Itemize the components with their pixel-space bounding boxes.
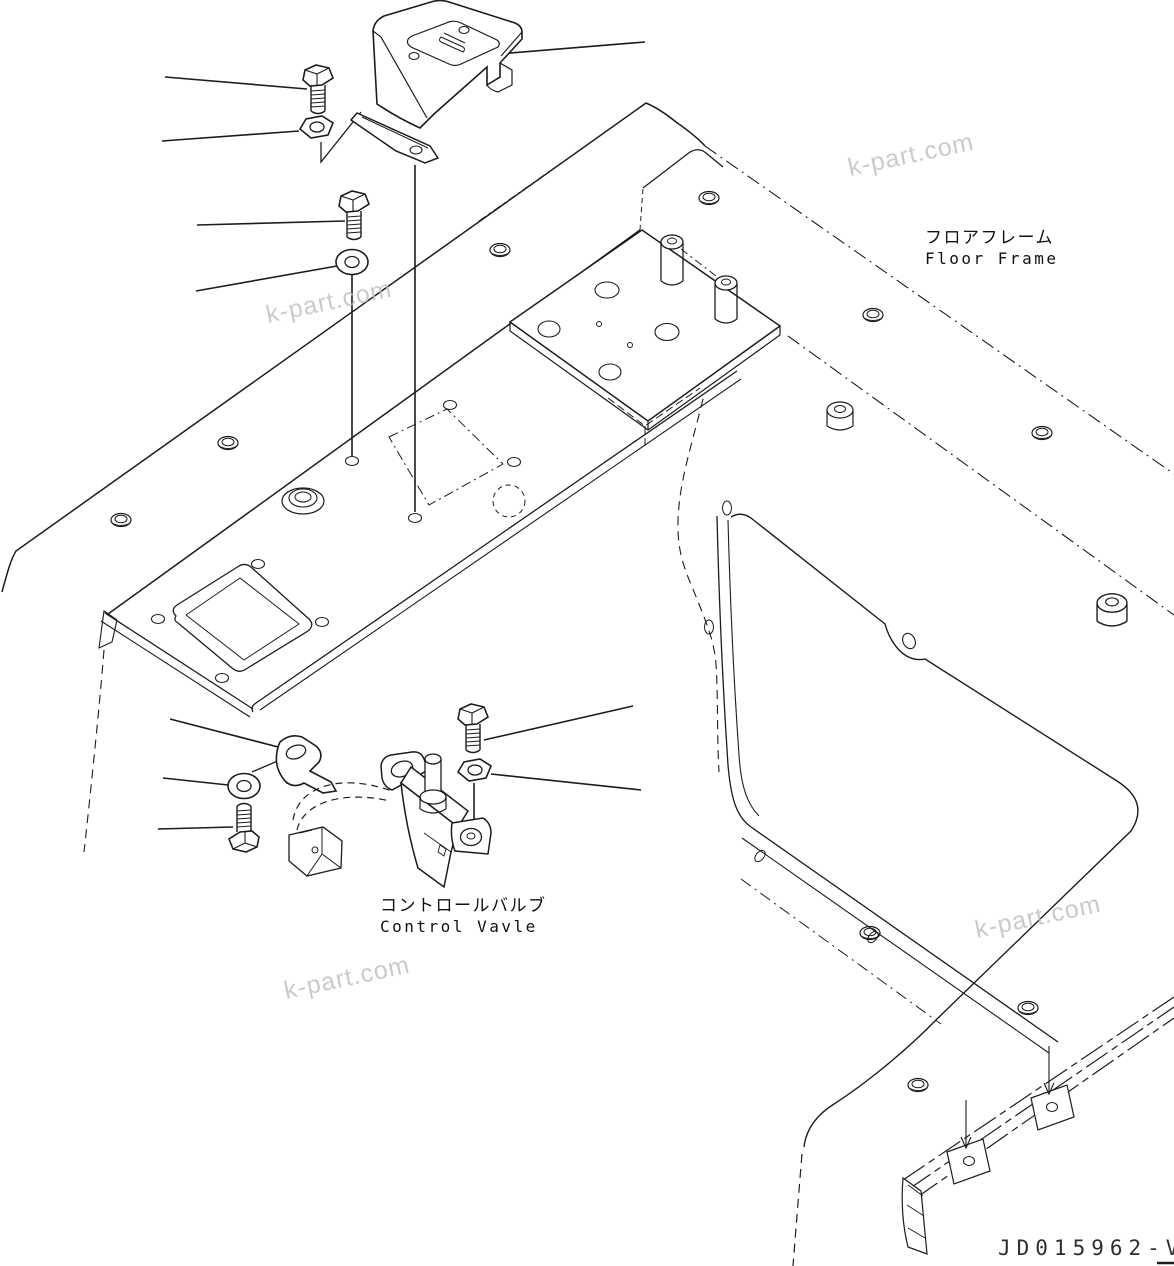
- flat-washer: [228, 774, 260, 799]
- floor-frame: [2, 103, 1174, 1266]
- large-grommet: [282, 488, 324, 514]
- bolt-hole: [152, 615, 165, 624]
- grommet-hole: [699, 192, 719, 205]
- boss-cylinder: [827, 402, 853, 430]
- leader-bolt-top: [165, 77, 307, 89]
- grommet-hole: [1018, 1002, 1038, 1015]
- flange-washer: [458, 759, 491, 781]
- clamp-tab: [276, 736, 336, 793]
- grommet-hole: [490, 244, 510, 257]
- leader-valve-washer: [491, 774, 641, 790]
- watermark: k-part.com: [263, 275, 394, 329]
- grommet-hole: [1032, 427, 1052, 440]
- watermark: k-part.com: [281, 951, 412, 1005]
- hex-bolt: [229, 804, 259, 853]
- hidden-hole: [493, 485, 525, 517]
- parts-diagram-canvas: フロアフレーム Floor Frame コントロールバルブ Control Va…: [0, 0, 1174, 1266]
- side-wall: [678, 399, 1174, 1266]
- rail-tab: [1031, 1046, 1074, 1130]
- grommet-hole: [218, 437, 238, 450]
- control-valve-label-jp: コントロールバルブ: [380, 895, 547, 916]
- watermark: k-part.com: [845, 128, 976, 182]
- hex-bolt: [458, 704, 488, 753]
- fasteners: [228, 65, 491, 852]
- hidden-recess-outline: [389, 409, 503, 505]
- grommet-hole: [863, 309, 883, 322]
- mounting-bracket: [351, 1, 522, 164]
- bracket-mount-hole: [409, 514, 422, 523]
- deck-front-edge: [105, 371, 737, 712]
- floor-frame-label-jp: フロアフレーム: [925, 228, 1054, 248]
- leader-washer-left: [163, 778, 228, 785]
- leader-valve-bolt: [484, 706, 633, 740]
- exploded-parts-diagram: フロアフレーム Floor Frame コントロールバルブ Control Va…: [0, 0, 1174, 1266]
- boss-cylinder: [1097, 594, 1127, 626]
- bracket-mount-hole: [346, 457, 359, 466]
- hex-bolt: [339, 191, 369, 240]
- leader-washer-second: [196, 266, 337, 291]
- leader-bracket: [498, 42, 645, 54]
- flat-washer: [336, 250, 368, 275]
- drawing-number: JD015962-V: [998, 1236, 1174, 1260]
- connector: [289, 827, 342, 876]
- bolt-hole: [444, 401, 457, 410]
- leader-bolt-left: [158, 827, 233, 829]
- floor-frame-label-en: Floor Frame: [925, 249, 1058, 268]
- wire-harness: [293, 783, 392, 830]
- control-valve-label-en: Control Vavle: [380, 917, 538, 936]
- wall-opening-outline: [731, 514, 1138, 1147]
- hex-bolt: [303, 65, 333, 114]
- leader-washer-top: [162, 131, 299, 141]
- grommet-hole: [111, 514, 131, 527]
- bolt-hole: [316, 618, 329, 627]
- grommet-hole: [908, 1079, 928, 1092]
- floor-recess-opening: [173, 564, 312, 671]
- watermark: k-part.com: [972, 890, 1103, 944]
- front-left-leg: [84, 611, 117, 852]
- bolt-hole: [252, 560, 265, 569]
- mounting-plate: [510, 230, 780, 430]
- flange-washer: [300, 116, 333, 138]
- leader-bolt-second: [197, 221, 345, 225]
- leader-clamp-tab: [170, 719, 282, 748]
- bolt-hole: [508, 458, 521, 467]
- frame-edge-dashdot-lower: [788, 336, 1174, 615]
- rail-tab: [947, 1100, 990, 1184]
- frame-edge-dashdot-upper: [705, 146, 1174, 474]
- bolt-hole: [216, 674, 229, 683]
